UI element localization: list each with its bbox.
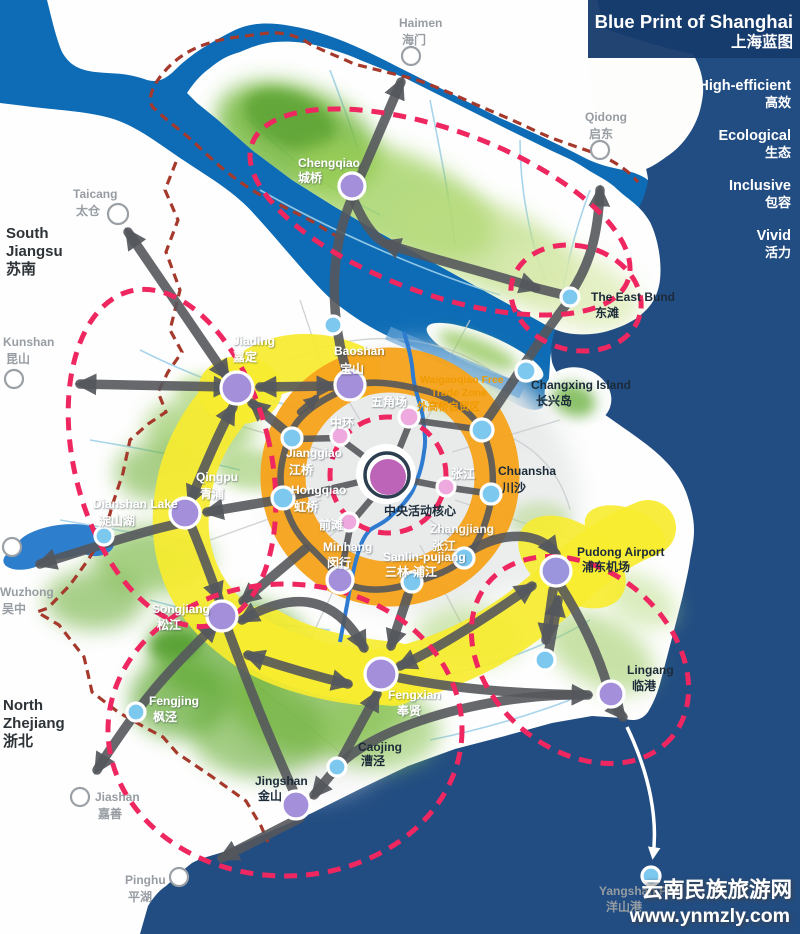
svg-text:Pinghu: Pinghu <box>125 873 166 887</box>
svg-text:云南民族旅游网: 云南民族旅游网 <box>641 877 792 902</box>
svg-text:中环: 中环 <box>330 415 354 430</box>
svg-text:The East Bund: The East Bund <box>591 290 675 304</box>
svg-text:Minhang: Minhang <box>323 540 372 554</box>
svg-text:生态: 生态 <box>765 145 791 160</box>
svg-text:吴中: 吴中 <box>2 601 26 616</box>
svg-text:启东: 启东 <box>589 126 613 141</box>
svg-text:枫泾: 枫泾 <box>153 709 177 724</box>
svg-text:Caojing: Caojing <box>358 740 402 754</box>
svg-text:www.ynmzly.com: www.ynmzly.com <box>629 905 790 927</box>
svg-text:漕泾: 漕泾 <box>361 753 385 768</box>
svg-text:Zhejiang: Zhejiang <box>3 715 65 732</box>
svg-text:前滩: 前滩 <box>319 517 343 532</box>
svg-text:Vivid: Vivid <box>757 228 791 244</box>
svg-text:Wuzhong: Wuzhong <box>0 585 54 599</box>
svg-text:闵行: 闵行 <box>327 555 351 570</box>
svg-text:Songjiang: Songjiang <box>152 602 210 616</box>
svg-text:昆山: 昆山 <box>6 351 30 366</box>
svg-text:虹桥: 虹桥 <box>294 499 319 514</box>
svg-text:青浦: 青浦 <box>200 486 224 501</box>
svg-text:Jiangsu: Jiangsu <box>6 243 63 260</box>
svg-text:Blue Print of Shanghai: Blue Print of Shanghai <box>595 11 793 32</box>
svg-text:Qingpu: Qingpu <box>196 470 238 484</box>
svg-text:高效: 高效 <box>765 95 792 110</box>
svg-text:浦东机场: 浦东机场 <box>582 559 630 574</box>
svg-text:五角场: 五角场 <box>371 394 407 409</box>
svg-text:宝山: 宝山 <box>340 361 364 376</box>
svg-text:东滩: 东滩 <box>595 305 619 320</box>
svg-text:嘉善: 嘉善 <box>97 806 122 821</box>
svg-text:Fengjing: Fengjing <box>149 694 199 708</box>
svg-text:中央活动核心: 中央活动核心 <box>384 503 456 518</box>
svg-text:South: South <box>6 225 49 242</box>
svg-text:外高桥自贸区: 外高桥自贸区 <box>416 400 480 413</box>
svg-text:Fengxian: Fengxian <box>388 688 441 702</box>
svg-text:Haimen: Haimen <box>399 16 442 30</box>
svg-text:Zhangjiang: Zhangjiang <box>430 522 494 536</box>
svg-text:Lingang: Lingang <box>627 663 674 677</box>
svg-text:Kunshan: Kunshan <box>3 335 54 349</box>
svg-text:Jiashan: Jiashan <box>95 790 140 804</box>
svg-text:江桥: 江桥 <box>289 462 314 477</box>
svg-text:Trade Zone: Trade Zone <box>431 387 487 399</box>
svg-text:High-efficient: High-efficient <box>698 78 791 94</box>
svg-text:Chengqiao: Chengqiao <box>298 156 360 170</box>
svg-text:海门: 海门 <box>402 32 426 47</box>
svg-text:三林-浦江: 三林-浦江 <box>385 564 437 579</box>
svg-text:Jianggiao: Jianggiao <box>286 446 342 460</box>
svg-text:Pudong Airport: Pudong Airport <box>577 545 665 559</box>
svg-text:金山: 金山 <box>257 788 282 803</box>
svg-text:浙北: 浙北 <box>3 732 33 750</box>
svg-text:太仓: 太仓 <box>76 203 101 218</box>
svg-text:城桥: 城桥 <box>298 170 323 185</box>
svg-text:Qidong: Qidong <box>585 110 627 124</box>
svg-text:淀山湖: 淀山湖 <box>99 513 135 528</box>
svg-text:活力: 活力 <box>765 245 791 260</box>
svg-text:Chuansha: Chuansha <box>498 464 556 478</box>
svg-text:松江: 松江 <box>157 617 181 632</box>
svg-text:Dianshan Lake: Dianshan Lake <box>93 497 178 511</box>
svg-text:Taicang: Taicang <box>73 187 117 201</box>
svg-text:苏南: 苏南 <box>6 260 36 278</box>
svg-text:包容: 包容 <box>765 195 791 210</box>
svg-text:Baoshan: Baoshan <box>334 344 385 358</box>
svg-text:平湖: 平湖 <box>128 889 152 904</box>
svg-text:Jingshan: Jingshan <box>255 774 308 788</box>
svg-text:North: North <box>3 697 43 714</box>
svg-text:Jiading: Jiading <box>233 334 275 348</box>
svg-text:张江: 张江 <box>432 538 456 553</box>
svg-text:川沙: 川沙 <box>501 481 526 495</box>
svg-text:Waigaoqiao Free: Waigaoqiao Free <box>420 374 504 386</box>
svg-text:临港: 临港 <box>632 678 657 693</box>
svg-text:Changxing Island: Changxing Island <box>531 378 631 392</box>
svg-text:Ecological: Ecological <box>718 128 791 144</box>
svg-text:上海蓝图: 上海蓝图 <box>731 32 793 51</box>
svg-text:奉贤: 奉贤 <box>396 703 421 718</box>
svg-text:Inclusive: Inclusive <box>729 178 791 194</box>
svg-text:嘉定: 嘉定 <box>232 349 257 364</box>
svg-text:长兴岛: 长兴岛 <box>536 393 572 408</box>
svg-text:Hongqiao: Hongqiao <box>291 483 346 497</box>
svg-text:张江: 张江 <box>451 466 475 481</box>
